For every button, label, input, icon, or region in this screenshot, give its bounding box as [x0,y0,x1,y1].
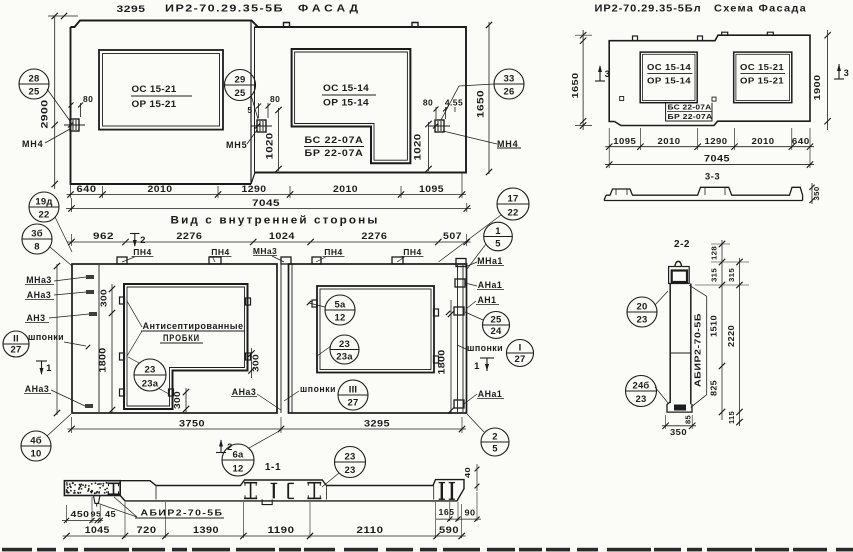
svg-text:28: 28 [29,74,40,85]
svg-text:3295: 3295 [117,4,146,14]
svg-text:10: 10 [31,449,42,460]
svg-text:2010: 2010 [333,184,358,194]
svg-text:МНа3: МНа3 [26,275,51,285]
svg-text:300: 300 [172,391,182,409]
svg-text:Схема Фасада: Схема Фасада [714,3,807,15]
svg-text:2-2: 2-2 [674,239,690,250]
svg-text:АН1: АН1 [477,295,496,305]
svg-text:720: 720 [137,525,157,535]
svg-text:1390: 1390 [193,525,219,535]
svg-text:1510: 1510 [710,315,719,337]
svg-text:АНа3: АНа3 [27,290,52,300]
svg-text:8: 8 [34,242,39,253]
svg-text:315: 315 [727,268,736,282]
svg-text:23: 23 [345,465,356,476]
svg-text:23: 23 [636,394,647,405]
svg-text:3750: 3750 [179,419,205,430]
svg-text:2110: 2110 [357,525,384,535]
svg-text:12: 12 [335,313,346,324]
svg-text:шпонки: шпонки [300,384,336,394]
svg-text:507: 507 [443,231,462,241]
svg-text:350: 350 [670,427,687,437]
svg-text:III: III [349,385,358,396]
svg-text:2220: 2220 [727,325,736,347]
svg-text:3295: 3295 [364,419,390,430]
svg-text:80: 80 [83,94,93,104]
svg-text:23: 23 [345,452,356,463]
svg-text:7045: 7045 [704,154,730,164]
svg-text:1800: 1800 [98,348,108,373]
svg-text:350: 350 [812,187,821,201]
svg-text:АНа3: АНа3 [25,384,50,394]
svg-text:2: 2 [492,432,497,443]
svg-text:6а: 6а [233,450,244,461]
svg-text:2276: 2276 [361,231,387,241]
svg-text:1290: 1290 [242,184,267,194]
svg-text:2010: 2010 [148,184,173,194]
svg-text:ОС 15-21: ОС 15-21 [740,63,784,72]
svg-text:19д: 19д [35,197,52,208]
svg-text:шпонки: шпонки [467,343,503,353]
svg-text:23: 23 [339,339,350,350]
svg-text:33: 33 [504,74,515,85]
svg-text:1: 1 [46,363,52,374]
svg-text:4.55: 4.55 [445,98,463,108]
svg-text:II: II [13,334,19,345]
svg-text:АБИР2-70-5Б: АБИР2-70-5Б [141,508,224,518]
svg-text:315: 315 [710,268,719,282]
svg-text:ИР2-70.29.35-5Бл: ИР2-70.29.35-5Бл [595,4,702,15]
svg-text:ПН4: ПН4 [324,247,342,257]
svg-text:640: 640 [792,136,810,146]
svg-text:ОС 15-21: ОС 15-21 [132,84,177,95]
svg-text:1-1: 1-1 [265,462,281,473]
svg-text:5: 5 [247,105,252,115]
svg-text:300: 300 [99,289,109,307]
svg-text:17: 17 [508,194,519,205]
svg-text:АН3: АН3 [26,313,45,323]
svg-text:5: 5 [492,444,498,455]
svg-text:ПН4: ПН4 [403,247,421,257]
svg-text:1800: 1800 [437,350,447,375]
svg-text:80: 80 [270,94,280,104]
svg-text:165: 165 [439,508,455,517]
svg-text:90: 90 [465,509,476,518]
svg-text:АНа1: АНа1 [478,389,503,399]
svg-text:МНа3: МНа3 [253,246,277,256]
svg-text:300: 300 [251,354,261,372]
svg-text:23: 23 [145,365,156,376]
svg-text:ПРОБКИ: ПРОБКИ [163,333,200,343]
svg-text:26: 26 [504,87,515,98]
svg-text:МНа1: МНа1 [477,256,502,266]
svg-text:640: 640 [77,184,97,194]
svg-text:1: 1 [495,226,501,237]
svg-text:128: 128 [710,246,719,260]
svg-text:23а: 23а [142,379,159,390]
svg-text:МН5: МН5 [226,140,247,150]
svg-text:80: 80 [423,98,433,108]
svg-text:1020: 1020 [265,133,275,160]
svg-text:85: 85 [686,415,693,424]
svg-text:3: 3 [844,68,849,78]
svg-text:590: 590 [439,525,459,535]
svg-text:2276: 2276 [176,231,202,241]
svg-text:ПН4: ПН4 [211,247,229,257]
svg-text:Вид с внутренней стороны: Вид с внутренней стороны [171,215,380,227]
svg-text:1: 1 [474,361,480,372]
svg-text:МН4: МН4 [497,139,518,149]
svg-text:7045: 7045 [252,198,280,208]
svg-text:450: 450 [71,510,90,519]
svg-text:5а: 5а [335,300,346,311]
svg-text:22: 22 [508,208,519,219]
svg-text:1095: 1095 [419,184,444,194]
svg-text:23: 23 [637,315,648,326]
svg-text:23а: 23а [336,352,353,363]
svg-text:3-3: 3-3 [705,172,720,183]
svg-text:2: 2 [140,235,146,246]
svg-text:АНа1: АНа1 [478,280,503,290]
svg-text:1650: 1650 [570,73,580,99]
svg-text:1024: 1024 [269,231,295,241]
svg-text:40: 40 [463,467,472,478]
svg-text:45: 45 [105,510,116,519]
svg-text:ПН4: ПН4 [133,247,151,257]
svg-text:25: 25 [235,88,246,99]
svg-text:1900: 1900 [812,75,822,101]
svg-text:115: 115 [727,411,736,424]
svg-text:ФАСАД: ФАСАД [298,3,362,15]
svg-text:ОР 15-14: ОР 15-14 [323,98,369,109]
svg-text:ИР2-70.29.35-5Б: ИР2-70.29.35-5Б [165,3,284,15]
svg-text:АБИР2-70-5Б: АБИР2-70-5Б [694,313,703,387]
svg-text:БС 22-07А: БС 22-07А [305,135,364,145]
svg-text:962: 962 [93,231,114,241]
svg-text:БР 22-07А: БР 22-07А [305,148,364,158]
svg-text:12: 12 [233,464,244,475]
svg-text:БС 22-07А: БС 22-07А [668,103,712,112]
svg-text:27: 27 [515,354,526,365]
svg-text:1190: 1190 [268,525,295,535]
svg-text:2010: 2010 [658,136,681,146]
svg-text:1045: 1045 [85,525,110,535]
svg-text:ОР 15-14: ОР 15-14 [647,77,691,86]
svg-text:2900: 2900 [40,100,50,129]
svg-text:Антисептированные: Антисептированные [143,321,244,331]
svg-text:ОР 15-21: ОР 15-21 [740,77,784,86]
svg-text:1650: 1650 [476,90,486,118]
svg-text:ОС 15-14: ОС 15-14 [323,83,369,94]
svg-text:шпонки: шпонки [28,332,64,342]
svg-text:МН4: МН4 [22,139,43,149]
svg-text:БР 22-07А: БР 22-07А [668,112,713,121]
svg-text:5: 5 [495,238,501,249]
svg-text:3: 3 [605,69,610,79]
svg-text:25: 25 [491,315,502,326]
svg-text:1290: 1290 [705,136,728,146]
svg-text:АНа3: АНа3 [232,387,257,397]
svg-text:ОС 15-14: ОС 15-14 [647,63,691,72]
svg-text:24: 24 [491,326,502,337]
svg-text:4б: 4б [30,436,42,447]
svg-text:825: 825 [710,380,719,396]
svg-text:22: 22 [39,210,50,221]
svg-text:I: I [519,343,522,354]
svg-text:ОР 15-21: ОР 15-21 [132,99,177,110]
svg-text:1095: 1095 [613,136,636,146]
svg-text:25: 25 [29,87,40,98]
svg-text:2010: 2010 [752,136,775,146]
svg-text:20: 20 [637,302,648,313]
svg-text:29: 29 [235,75,246,86]
svg-text:24б: 24б [632,381,649,392]
svg-text:27: 27 [11,345,22,356]
svg-text:27: 27 [348,398,359,409]
svg-text:1020: 1020 [413,134,423,161]
svg-text:3б: 3б [31,229,43,240]
